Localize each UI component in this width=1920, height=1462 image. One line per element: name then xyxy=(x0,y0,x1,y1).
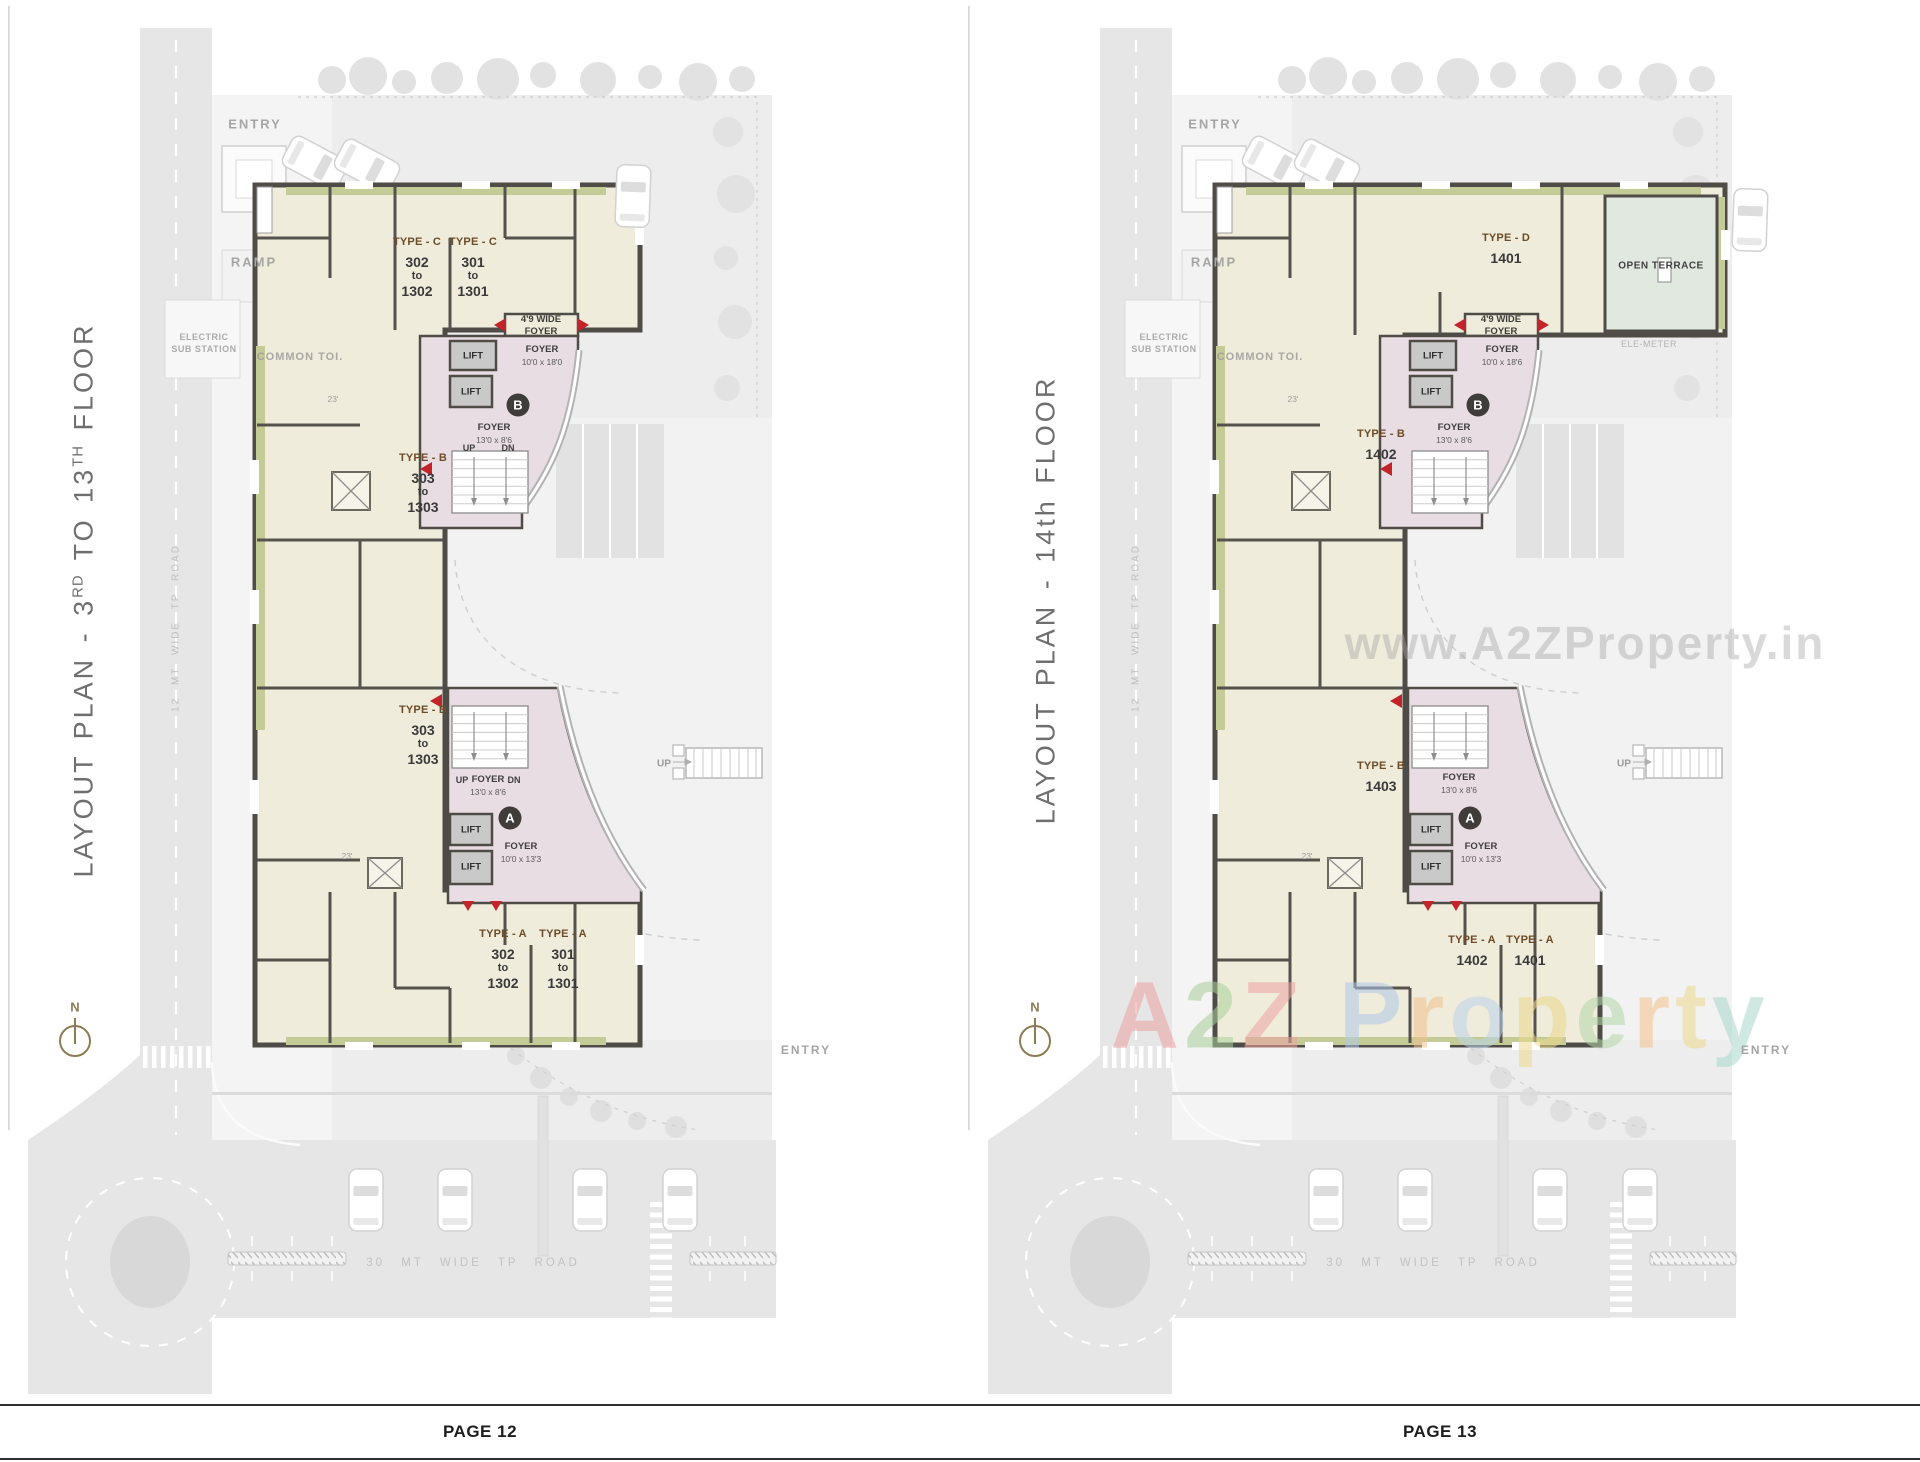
common-toilet-label: COMMON TOI. xyxy=(1217,351,1304,363)
dn-label: DN xyxy=(508,775,521,785)
entry-label-top: ENTRY xyxy=(1188,117,1242,132)
dimension-label: 23' xyxy=(1301,851,1312,861)
ramp-label: RAMP xyxy=(1191,255,1237,270)
entry-label-bottom: ENTRY xyxy=(781,1043,831,1057)
unit-type-c-301: TYPE - C 301 to 1301 xyxy=(449,236,497,299)
lift-label: LIFT xyxy=(461,825,481,836)
lift-label: LIFT xyxy=(461,862,481,873)
entry-label-bottom: ENTRY xyxy=(1741,1043,1791,1057)
unit-type-a-1402: TYPE - A 1402 xyxy=(1448,934,1496,968)
footer-divider-top xyxy=(0,1404,1920,1406)
core-b-badge: B xyxy=(1467,394,1490,417)
electric-sub-station-label: ELECTRIC SUB STATION xyxy=(171,331,236,355)
unit-type-c-302: TYPE - C 302 to 1302 xyxy=(393,236,441,299)
lift-label: LIFT xyxy=(461,387,481,398)
site-plan-drawing-left xyxy=(0,0,960,1462)
stair-a-foyer-label: FOYER 13'0 x 8'6 xyxy=(1441,772,1477,796)
unit-type-d-1401: TYPE - D 1401 xyxy=(1482,232,1530,266)
wide-foyer-label: 4'9 WIDE FOYER xyxy=(1481,314,1521,338)
footer-divider-bottom xyxy=(0,1458,1920,1460)
layout-plan-sheet: LAYOUT PLAN - 3RD TO 13TH FLOOR ENTRY RA… xyxy=(0,0,1920,1462)
dimension-label: 23' xyxy=(1287,394,1298,404)
unit-type-a-1401: TYPE - A 1401 xyxy=(1506,934,1554,968)
north-arrow-label: N xyxy=(1030,1000,1039,1015)
electric-sub-station-label: ELECTRIC SUB STATION xyxy=(1131,331,1196,355)
lift-label: LIFT xyxy=(1421,862,1441,873)
side-road-label: 12 MT WIDE TP ROAD xyxy=(171,544,182,712)
unit-type-b-303-upper: TYPE - B 303 to 1303 xyxy=(399,452,447,515)
dn-label: DN xyxy=(502,443,515,453)
watermark-brand: A2ZProperty xyxy=(1110,962,1769,1071)
open-terrace-label: OPEN TERRACE xyxy=(1618,261,1703,272)
up-parking-label: UP xyxy=(657,759,671,770)
stair-a-foyer-label: FOYER 13'0 x 8'6 xyxy=(470,774,506,798)
page-title: LAYOUT PLAN - 14th FLOOR xyxy=(1031,376,1062,825)
dimension-label: 23' xyxy=(341,851,352,861)
foyer-b-label: FOYER 10'0 x 18'0 xyxy=(522,344,563,368)
unit-type-b-303-lower: TYPE - B 303 to 1303 xyxy=(399,704,447,767)
up-parking-label: UP xyxy=(1617,759,1631,770)
lift-label: LIFT xyxy=(1421,387,1441,398)
wide-foyer-label: 4'9 WIDE FOYER xyxy=(521,314,561,338)
common-toilet-label: COMMON TOI. xyxy=(257,351,344,363)
lift-label: LIFT xyxy=(1421,825,1441,836)
unit-type-b-1402: TYPE - B 1402 xyxy=(1357,428,1405,462)
dimension-label: 23' xyxy=(327,394,338,404)
foyer-a-label: FOYER 10'0 x 13'3 xyxy=(1461,841,1502,865)
lift-label: LIFT xyxy=(1423,351,1443,362)
site-plan-drawing-right xyxy=(960,0,1920,1462)
watermark-url: www.A2ZProperty.in xyxy=(1345,616,1826,670)
core-a-badge: A xyxy=(1459,807,1482,830)
unit-type-a-302: TYPE - A 302 to 1302 xyxy=(479,928,527,991)
core-a-badge: A xyxy=(499,807,522,830)
entry-label-top: ENTRY xyxy=(228,117,282,132)
bottom-road-label: 30 MT WIDE TP ROAD xyxy=(366,1257,580,1269)
side-road-label: 12 MT WIDE TP ROAD xyxy=(1131,544,1142,712)
up-label: UP xyxy=(463,443,476,453)
floor-plan-panel-3rd-to-13th: LAYOUT PLAN - 3RD TO 13TH FLOOR ENTRY RA… xyxy=(0,0,960,1462)
stair-b-foyer-label: FOYER 13'0 x 8'6 xyxy=(476,422,512,446)
unit-type-b-1403: TYPE - B 1403 xyxy=(1357,760,1405,794)
core-b-badge: B xyxy=(507,394,530,417)
stair-b-foyer-label: FOYER 13'0 x 8'6 xyxy=(1436,422,1472,446)
ele-meter-label: ELE-METER xyxy=(1621,339,1677,349)
unit-type-a-301: TYPE - A 301 to 1301 xyxy=(539,928,587,991)
foyer-a-label: FOYER 10'0 x 13'3 xyxy=(501,841,542,865)
page-number: PAGE 12 xyxy=(443,1422,517,1442)
foyer-b-label: FOYER 10'0 x 18'6 xyxy=(1482,344,1523,368)
bottom-road-label: 30 MT WIDE TP ROAD xyxy=(1326,1257,1540,1269)
north-arrow-label: N xyxy=(70,1000,79,1015)
ramp-label: RAMP xyxy=(231,255,277,270)
floor-plan-panel-14th: www.A2ZProperty.in A2ZProperty LAYOUT PL… xyxy=(960,0,1920,1462)
page-title: LAYOUT PLAN - 3RD TO 13TH FLOOR xyxy=(69,323,100,878)
lift-label: LIFT xyxy=(463,351,483,362)
page-number: PAGE 13 xyxy=(1403,1422,1477,1442)
up-label: UP xyxy=(456,775,469,785)
